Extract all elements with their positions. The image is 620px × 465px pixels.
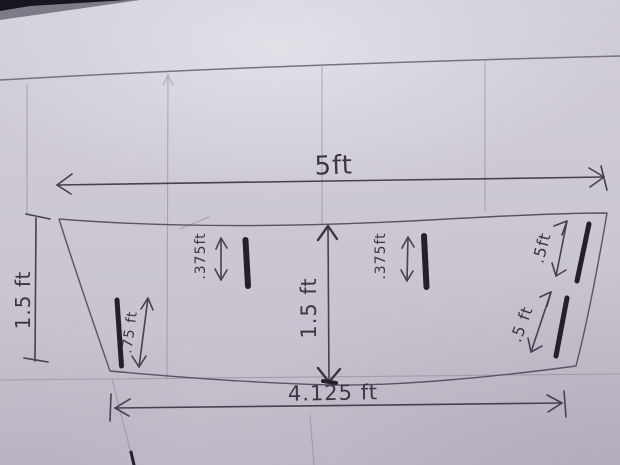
right-top-inset-label: .5ft [528,230,554,265]
left-slot-label: .375ft [193,232,209,279]
bottom-left-marker-line [117,300,122,366]
stray-marker-dash [131,452,134,465]
bottom-width-dimension: 4.125 ft [110,380,566,421]
arrowhead-left [57,174,72,194]
dimension-line [328,227,329,381]
center-height-label: 1.5 ft [297,277,321,338]
dimension-line [407,237,408,281]
panel-outline [59,213,607,385]
left-height-label: 1.5 ft [11,271,35,330]
left-slot-dimension: .375ft [193,232,248,286]
right-bottom-inset-label: .5 ft [506,304,537,345]
right-bottom-marker-line [556,298,567,356]
right-slot-dimension: .375ft [373,232,427,287]
dimension-line [556,221,567,276]
guide-horizontal-bottom [0,374,620,380]
stray-pencil-line-bottom [112,379,133,461]
stray-pencil-mark-top [180,217,209,229]
center-height-dimension: 1.5 ft [297,226,340,383]
top-width-dimension: 5ft [57,150,607,194]
arrowhead-right [547,391,566,417]
paper-crease [310,415,314,465]
right-bottom-inset-dimension: .5 ft [506,292,567,356]
left-slot-marker-line [246,240,249,286]
sketch-drawing: 5ft 1.5 ft 1.5 ft 4.125 ft .375ft [0,0,620,465]
bottom-width-label: 4.125 ft [288,380,378,406]
guide-vertical-2 [167,74,168,379]
arrowhead-top [540,292,551,306]
top-width-label: 5ft [314,150,353,181]
right-slot-marker-line [424,236,427,287]
photo-of-paper-sketch: 5ft 1.5 ft 1.5 ft 4.125 ft .375ft [0,0,620,465]
top-guide-line [0,56,620,80]
dimension-line [35,218,36,361]
bottom-left-inset-dimension: .75 ft [117,298,153,367]
arrowhead-right [589,166,607,190]
left-height-dimension: 1.5 ft [11,214,50,362]
right-top-marker-line [577,224,589,281]
right-top-inset-dimension: .5ft [528,221,589,281]
dimension-line [139,298,148,367]
right-slot-label: .375ft [373,232,389,279]
